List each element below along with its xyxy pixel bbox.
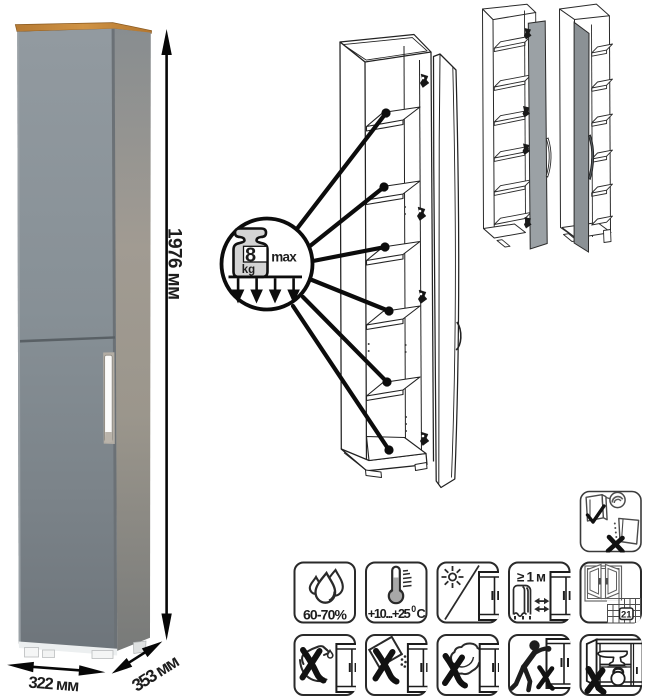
svg-text:322 мм: 322 мм (28, 674, 80, 696)
svg-text:60-70%: 60-70% (303, 607, 348, 623)
svg-text:1976 мм: 1976 мм (164, 228, 185, 300)
svg-text:0: 0 (411, 604, 416, 614)
svg-text:kg: kg (242, 264, 255, 276)
svg-text:C: C (417, 606, 426, 621)
svg-text:max: max (271, 250, 297, 265)
svg-text:≥1м: ≥1м (517, 570, 546, 585)
svg-text:+10...+25: +10...+25 (368, 606, 411, 621)
svg-text:21: 21 (621, 610, 632, 621)
